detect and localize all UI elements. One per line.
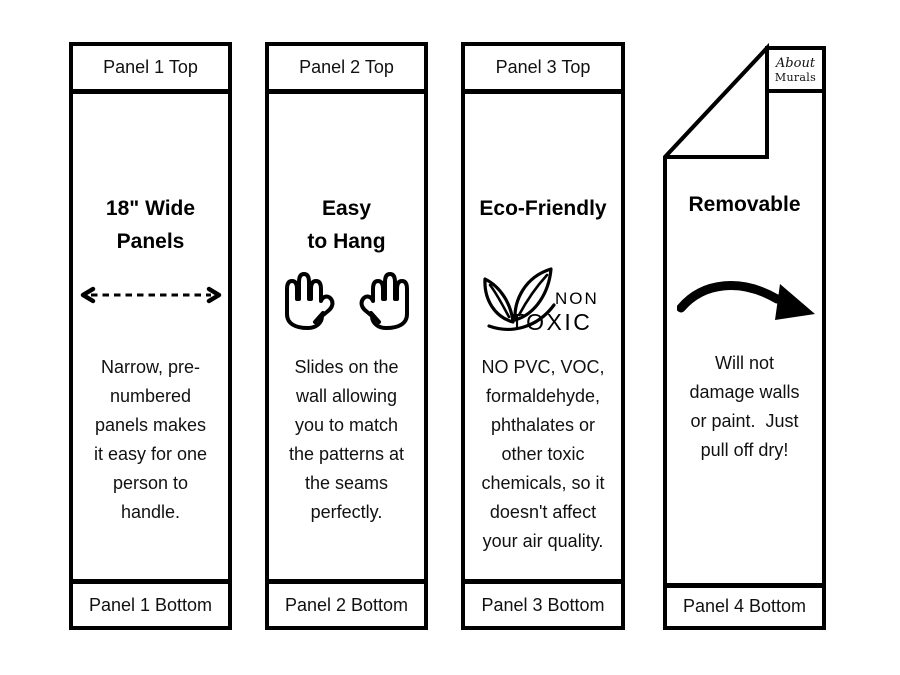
panel-1-bottom-label: Panel 1 Bottom [73, 579, 228, 626]
logo-serif-text: Murals [775, 71, 816, 84]
body-line: doesn't affect [465, 498, 621, 527]
body-line: phthalates or [465, 411, 621, 440]
panel-1-title-line: 18" Wide [73, 192, 228, 225]
body-line: Slides on the [269, 353, 424, 382]
dashed-double-arrow-icon [77, 286, 225, 304]
panel-2: Panel 2 Top Easy to Hang Slides on the w… [265, 42, 428, 630]
non-toxic-row: NON TOXIC [465, 260, 621, 336]
logo-script-text: About [776, 57, 815, 71]
peel-arrow-row [677, 270, 817, 333]
hands-row [269, 268, 424, 332]
non-label: NON [555, 289, 599, 308]
body-line: your air quality. [465, 527, 621, 556]
body-line: handle. [73, 498, 228, 527]
folded-page-outline [663, 42, 826, 630]
panel-3-bottom-label: Panel 3 Bottom [465, 579, 621, 626]
panel-4: About Murals Removable Will not damage w… [663, 42, 826, 630]
panel-1: Panel 1 Top 18" Wide Panels Narrow, pre-… [69, 42, 232, 630]
panel-2-title-line: Easy [269, 192, 424, 225]
panel-2-bottom-label: Panel 2 Bottom [269, 579, 424, 626]
panel-2-body: Slides on the wall allowing you to match… [269, 353, 424, 527]
panel-3-top-label: Panel 3 Top [465, 46, 621, 94]
aboutmurals-logo: About Murals [768, 50, 823, 90]
panel-2-top-label: Panel 2 Top [269, 46, 424, 94]
panel-1-title: 18" Wide Panels [73, 192, 228, 258]
hand-icon [279, 268, 335, 332]
panel-4-title: Removable [663, 188, 826, 221]
body-line: perfectly. [269, 498, 424, 527]
body-line: the seams [269, 469, 424, 498]
panel-4-title-line: Removable [663, 188, 826, 221]
body-line: panels makes [73, 411, 228, 440]
body-line: wall allowing [269, 382, 424, 411]
body-line: NO PVC, VOC, [465, 353, 621, 382]
body-line: or paint. Just [663, 407, 826, 436]
panel-1-top-label: Panel 1 Top [73, 46, 228, 94]
body-line: you to match [269, 411, 424, 440]
panel-3-title-line: Eco-Friendly [465, 192, 621, 225]
panel-4-bottom-label: Panel 4 Bottom [663, 586, 826, 626]
panel-4-body: Will not damage walls or paint. Just pul… [663, 349, 826, 465]
panel-1-title-line: Panels [73, 225, 228, 258]
body-line: numbered [73, 382, 228, 411]
body-line: chemicals, so it [465, 469, 621, 498]
panel-3-body: NO PVC, VOC, formaldehyde, phthalates or… [465, 353, 621, 556]
body-line: Narrow, pre- [73, 353, 228, 382]
curved-arrow-icon [677, 270, 817, 328]
body-line: other toxic [465, 440, 621, 469]
panel-3: Panel 3 Top Eco-Friendly NON TOXIC NO PV… [461, 42, 625, 630]
non-toxic-leaves-icon: NON TOXIC [481, 260, 605, 336]
width-arrow-row [73, 286, 228, 304]
body-line: the patterns at [269, 440, 424, 469]
panel-2-title-line: to Hang [269, 225, 424, 258]
hand-icon [359, 268, 415, 332]
panel-3-title: Eco-Friendly [465, 192, 621, 225]
body-line: it easy for one [73, 440, 228, 469]
body-line: formaldehyde, [465, 382, 621, 411]
toxic-label: TOXIC [510, 309, 592, 335]
folded-corner [665, 48, 767, 157]
body-line: person to [73, 469, 228, 498]
body-line: damage walls [663, 378, 826, 407]
body-line: Will not [663, 349, 826, 378]
panel-1-body: Narrow, pre- numbered panels makes it ea… [73, 353, 228, 527]
body-line: pull off dry! [663, 436, 826, 465]
panel-2-title: Easy to Hang [269, 192, 424, 258]
